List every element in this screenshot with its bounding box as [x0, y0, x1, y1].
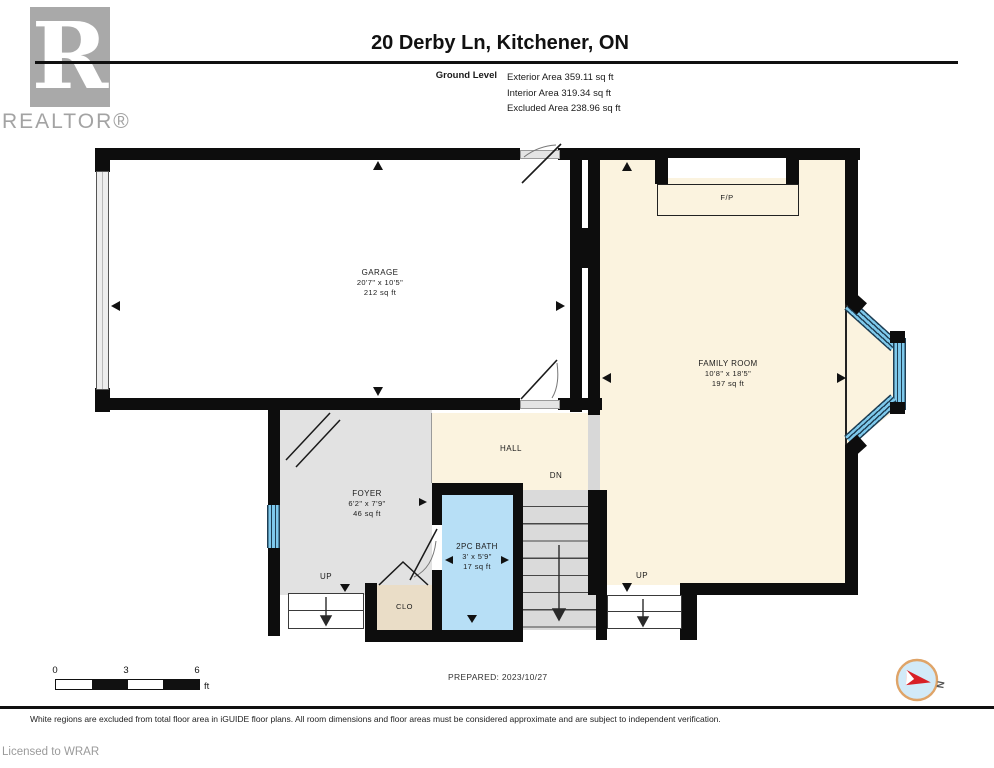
- wall: [786, 158, 799, 184]
- scale-unit: ft: [204, 681, 209, 692]
- level-label: Ground Level: [360, 70, 497, 81]
- room-area: 17 sq ft: [437, 562, 517, 572]
- dn-label: DN: [542, 471, 570, 480]
- foyer-hall-boundary: [431, 413, 432, 483]
- area-summary: Exterior Area 359.11 sq ft Interior Area…: [507, 70, 621, 117]
- wall: [596, 490, 607, 640]
- measure-arrow-left: [111, 301, 120, 311]
- exterior-area: Exterior Area 359.11 sq ft: [507, 70, 621, 86]
- scale-tick-3: 3: [116, 665, 136, 676]
- compass-needle-white: [904, 670, 915, 686]
- entry-step: [607, 611, 682, 629]
- scale-tick-6: 6: [187, 665, 207, 676]
- fireplace-label: F/P: [657, 193, 797, 202]
- room-dims: 20'7" x 10'5": [298, 278, 462, 288]
- room-area: 212 sq ft: [298, 288, 462, 298]
- scale-bar: [55, 679, 200, 690]
- bay-corner: [890, 331, 905, 343]
- wall: [365, 630, 523, 642]
- compass-circle: [897, 660, 937, 700]
- entry-step: [288, 610, 364, 629]
- room-dims: 6'2" x 7'9": [315, 499, 419, 509]
- room-name: FOYER: [315, 489, 419, 499]
- family-room-label: FAMILY ROOM 10'8" x 18'5" 197 sq ft: [648, 359, 808, 389]
- scale-segment: [128, 680, 164, 689]
- realtor-brand-text: REALTOR®: [2, 110, 131, 134]
- scale-tick-0: 0: [45, 665, 65, 676]
- closet-label: CLO: [382, 602, 427, 611]
- bath-label: 2PC BATH 3' x 5'9" 17 sq ft: [437, 542, 517, 572]
- staircase: [523, 490, 596, 630]
- wall: [95, 148, 110, 172]
- prepared-date: PREPARED: 2023/10/27: [448, 672, 547, 682]
- licensed-text: Licensed to WRAR: [2, 746, 99, 758]
- excluded-area: Excluded Area 238.96 sq ft: [507, 101, 621, 117]
- wall: [268, 548, 280, 636]
- room-area: 46 sq ft: [315, 509, 419, 519]
- wall: [268, 410, 280, 505]
- scale-segment: [163, 680, 199, 689]
- measure-arrow-down: [373, 387, 383, 396]
- room-name: FAMILY ROOM: [648, 359, 808, 369]
- wall: [570, 228, 600, 268]
- room-name: 2PC BATH: [437, 542, 517, 552]
- room-area: 197 sq ft: [648, 379, 808, 389]
- room-dims: 10'8" x 18'5": [648, 369, 808, 379]
- foyer-label: FOYER 6'2" x 7'9" 46 sq ft: [315, 489, 419, 519]
- door-leaf: [521, 360, 557, 399]
- wall: [655, 158, 668, 184]
- garage-label: GARAGE 20'7" x 10'5" 212 sq ft: [298, 268, 462, 298]
- door-threshold: [520, 400, 560, 409]
- hall-label: HALL: [481, 444, 541, 453]
- scale-segment: [56, 680, 92, 689]
- wall: [432, 495, 442, 525]
- compass-needle: [904, 670, 932, 689]
- measure-arrow-right: [556, 301, 565, 311]
- footer-divider: [0, 706, 994, 709]
- header-divider: [35, 61, 958, 64]
- wall: [588, 148, 600, 415]
- room-name: GARAGE: [298, 268, 462, 278]
- interior-area: Interior Area 319.34 sq ft: [507, 86, 621, 102]
- room-dims: 3' x 5'9": [437, 552, 517, 562]
- cased-opening: [588, 415, 600, 490]
- garage-door: [96, 171, 109, 390]
- disclaimer-text: White regions are excluded from total fl…: [30, 714, 970, 724]
- door-threshold: [520, 150, 560, 159]
- door-swing-arc: [552, 363, 558, 398]
- measure-arrow-up: [373, 161, 383, 170]
- wall: [845, 445, 858, 595]
- page-title: 20 Derby Ln, Kitchener, ON: [200, 32, 800, 55]
- wall: [95, 398, 520, 410]
- fireplace-recess: [668, 158, 786, 178]
- wall: [432, 483, 523, 495]
- scale-segment: [92, 680, 128, 689]
- up-label-family: UP: [628, 571, 656, 580]
- realtor-logo-icon: R: [30, 7, 110, 107]
- bay-corner: [890, 402, 905, 414]
- wall: [845, 148, 858, 303]
- wall: [680, 583, 858, 595]
- wall: [680, 583, 697, 640]
- bay-wall-line: [845, 300, 847, 448]
- up-label-foyer: UP: [312, 572, 340, 581]
- floorplan-page: R REALTOR® 20 Derby Ln, Kitchener, ON Gr…: [0, 0, 994, 768]
- north-label: N: [934, 680, 946, 689]
- wall: [570, 148, 582, 412]
- wall: [95, 148, 520, 160]
- foyer-window: [267, 505, 280, 548]
